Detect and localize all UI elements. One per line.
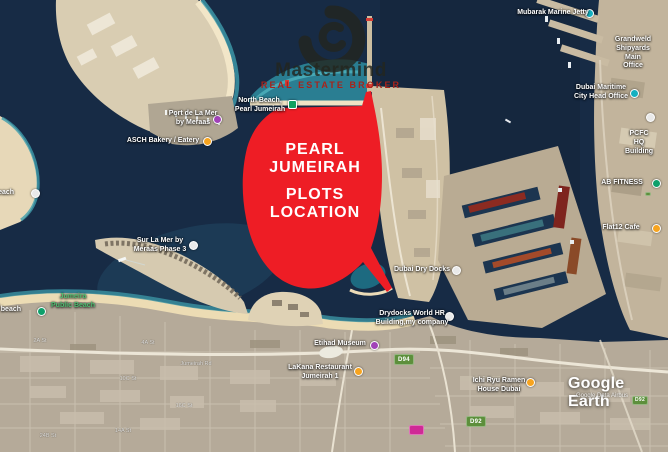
ab-fitness-green-tag <box>645 192 651 196</box>
poi-marker-pcfc <box>646 113 655 122</box>
poi-marker-flat12 <box>652 224 661 233</box>
poi-marker-li-beach <box>31 189 40 198</box>
poi-marker-mubarak-jetty <box>585 9 594 18</box>
poi-marker-lakana <box>354 367 363 376</box>
poi-marker-ichi-ryu <box>526 378 535 387</box>
street-label: 2A St <box>33 338 46 344</box>
plots-overlay-title: PEARL JUMEIRAH PLOTS LOCATION <box>247 141 383 231</box>
road-badge-d92: D92 <box>466 416 486 427</box>
poi-marker-mer-beach <box>37 307 46 316</box>
poi-marker-drydocks-hr <box>445 312 454 321</box>
street-label: 14A St <box>115 428 131 434</box>
poi-marker-asch-bakery <box>203 137 212 146</box>
poi-marker-maritime-city <box>630 89 639 98</box>
poi-marker-port-de-la-mer <box>213 115 222 124</box>
magenta-route-badge <box>409 425 424 435</box>
poi-marker-sur-la-mer <box>189 241 198 250</box>
overlay-line-group-1: PEARL JUMEIRAH <box>247 141 383 177</box>
street-label: 16C St <box>176 403 193 409</box>
imagery-attribution: Google Data Airbus <box>576 393 628 399</box>
poi-marker-north-beach-icon <box>288 100 297 109</box>
brand-tagline: REAL ESTATE BROKER <box>251 80 411 90</box>
street-label: 4A St <box>141 340 154 346</box>
street-label: 10C St <box>120 376 137 382</box>
street-label: 24B St <box>40 433 57 439</box>
street-label: Jumeirah Rd <box>180 361 211 367</box>
road-badge-d94: D94 <box>394 354 414 365</box>
satellite-map-image: Mastermind REAL ESTATE BROKER PEARL JUME… <box>0 0 668 452</box>
brand-name: Mastermind <box>261 60 401 82</box>
poi-marker-ab-fitness <box>652 179 661 188</box>
overlay-line-group-2: PLOTS LOCATION <box>247 186 383 222</box>
poi-marker-etihad-museum <box>370 341 379 350</box>
poi-marker-dry-docks <box>452 266 461 275</box>
